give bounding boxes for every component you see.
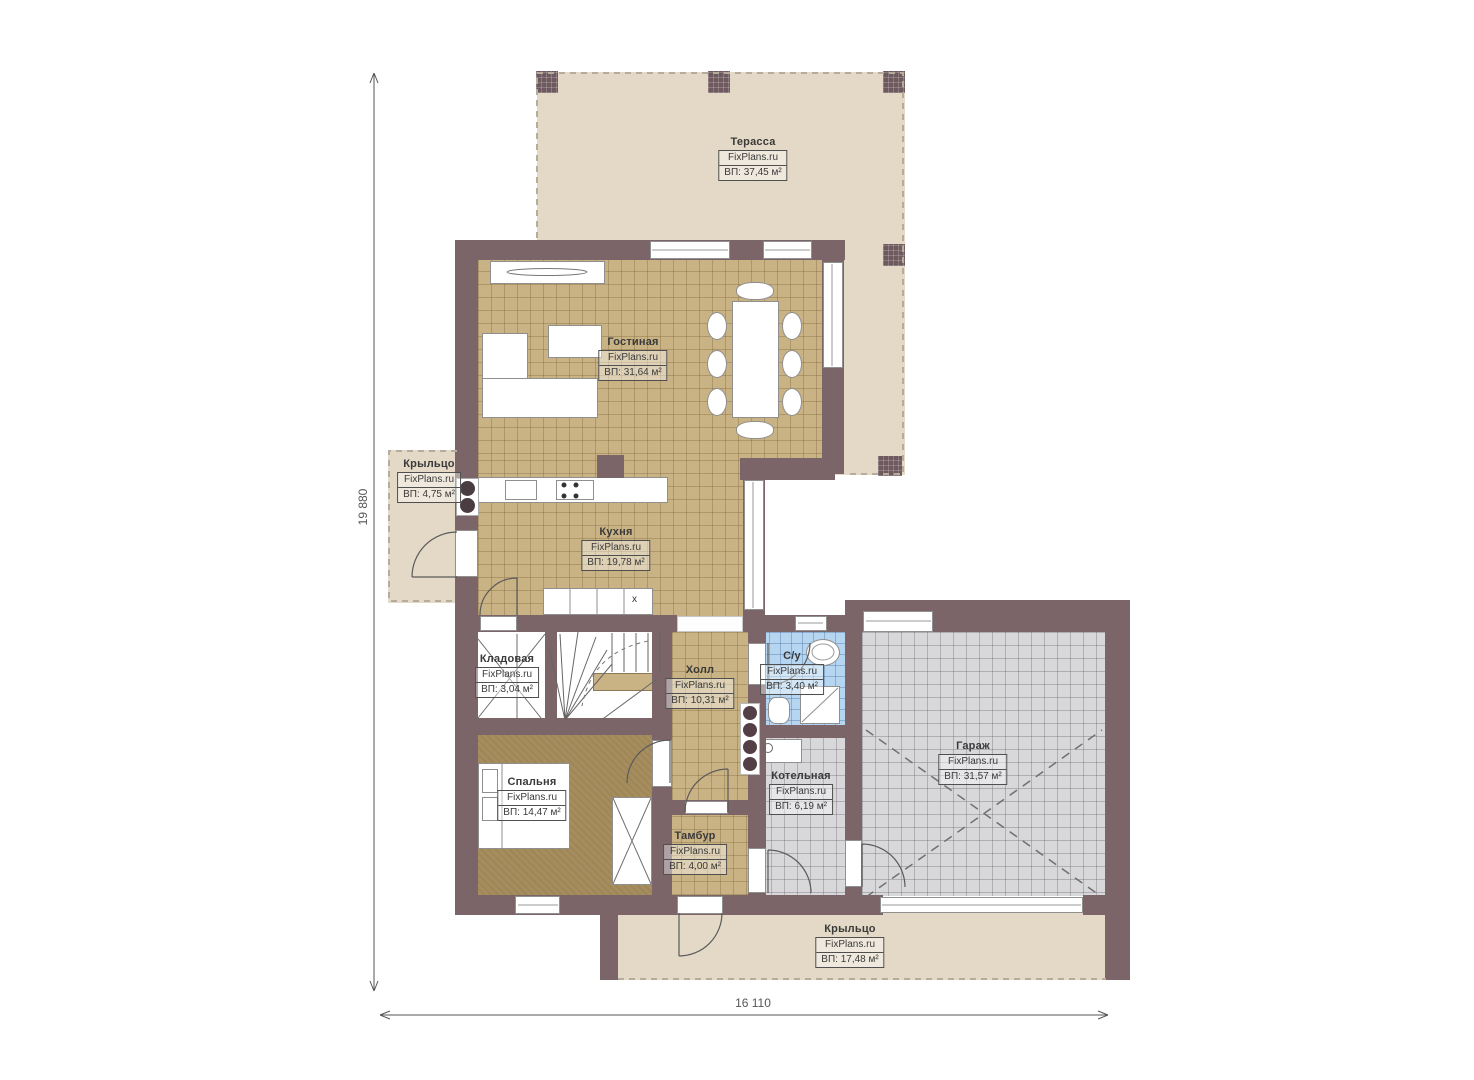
sofa <box>482 378 598 418</box>
brand-watermark: FixPlans.ru <box>761 665 823 680</box>
wall-segment <box>600 895 618 980</box>
bed-pillow <box>482 769 498 793</box>
room-info-box: FixPlans.ru ВП: 31,64 м² <box>598 350 667 381</box>
dimension-width: 16 110 <box>718 996 788 1010</box>
room-info-box: FixPlans.ru ВП: 4,75 м² <box>397 472 461 503</box>
dining-chair <box>782 350 802 378</box>
room-info-box: FixPlans.ru ВП: 37,45 м² <box>718 150 787 181</box>
room-info-box: FixPlans.ru ВП: 17,48 м² <box>815 937 884 968</box>
terrace-pillar <box>878 456 902 476</box>
chimney-column <box>597 455 624 478</box>
room-name: Гостиная <box>598 336 667 348</box>
brand-watermark: FixPlans.ru <box>498 791 565 806</box>
door-opening <box>455 530 478 577</box>
heating-manifold-valve <box>743 706 757 720</box>
room-name: Холл <box>665 664 734 676</box>
room-label-bathroom: С/у FixPlans.ru ВП: 3,40 м² <box>760 650 824 695</box>
passage-threshold <box>677 616 743 632</box>
room-info-box: FixPlans.ru ВП: 6,19 м² <box>769 784 833 815</box>
island-marker: x <box>632 594 637 605</box>
terrace-pillar <box>883 244 905 266</box>
room-info-box: FixPlans.ru ВП: 19,78 м² <box>581 540 650 571</box>
dining-chair <box>736 282 774 300</box>
brand-watermark: FixPlans.ru <box>770 785 832 800</box>
room-label-garage: Гараж FixPlans.ru ВП: 31,57 м² <box>938 740 1007 785</box>
room-label-vestibule: Тамбур FixPlans.ru ВП: 4,00 м² <box>663 830 727 875</box>
room-label-living-room: Гостиная FixPlans.ru ВП: 31,64 м² <box>598 336 667 381</box>
wall-segment <box>748 725 845 738</box>
kitchen-stove <box>556 480 594 500</box>
room-name: С/у <box>760 650 824 662</box>
room-area: ВП: 19,78 м² <box>582 556 649 570</box>
room-info-box: FixPlans.ru ВП: 10,31 м² <box>665 678 734 709</box>
room-label-boiler-room: Котельная FixPlans.ru ВП: 6,19 м² <box>769 770 833 815</box>
room-name: Терасса <box>718 136 787 148</box>
room-area: ВП: 6,19 м² <box>770 800 832 814</box>
room-info-box: FixPlans.ru ВП: 3,40 м² <box>760 664 824 695</box>
wall-unit-burner <box>460 498 475 513</box>
door-opening <box>480 616 517 631</box>
dining-chair <box>782 312 802 340</box>
wall-segment <box>545 632 557 725</box>
window <box>744 480 764 610</box>
brand-watermark: FixPlans.ru <box>666 679 733 694</box>
door-opening <box>685 801 728 814</box>
wall-segment <box>455 718 672 735</box>
dining-table <box>732 301 779 418</box>
hall-floor <box>672 632 748 804</box>
window <box>795 616 827 631</box>
room-area: ВП: 3,40 м² <box>761 680 823 694</box>
brand-watermark: FixPlans.ru <box>398 473 460 488</box>
brand-watermark: FixPlans.ru <box>476 668 538 683</box>
room-name: Кладовая <box>475 653 539 665</box>
stair-landing <box>593 673 660 691</box>
floor-plan: x <box>0 0 1474 1080</box>
room-area: ВП: 3,04 м² <box>476 683 538 697</box>
window <box>863 611 933 632</box>
room-name: Кухня <box>581 526 650 538</box>
tv-stand <box>490 261 605 284</box>
wardrobe <box>612 797 652 885</box>
room-info-box: FixPlans.ru ВП: 31,57 м² <box>938 754 1007 785</box>
wall-segment <box>1105 600 1130 980</box>
heating-manifold-valve <box>743 723 757 737</box>
room-info-box: FixPlans.ru ВП: 3,04 м² <box>475 667 539 698</box>
door-opening <box>652 740 672 787</box>
kitchen-sink <box>505 480 537 500</box>
room-name: Тамбур <box>663 830 727 842</box>
room-label-kitchen: Кухня FixPlans.ru ВП: 19,78 м² <box>581 526 650 571</box>
toilet <box>768 697 790 724</box>
window <box>823 262 843 368</box>
room-label-terrace: Терасса FixPlans.ru ВП: 37,45 м² <box>718 136 787 181</box>
room-label-porch-left: Крыльцо FixPlans.ru ВП: 4,75 м² <box>397 458 461 503</box>
dining-chair <box>736 421 774 439</box>
room-area: ВП: 31,57 м² <box>939 770 1006 784</box>
room-area: ВП: 17,48 м² <box>816 953 883 967</box>
terrace-pillar <box>883 71 905 93</box>
brand-watermark: FixPlans.ru <box>582 541 649 556</box>
room-name: Спальня <box>497 776 566 788</box>
brand-watermark: FixPlans.ru <box>599 351 666 366</box>
brand-watermark: FixPlans.ru <box>816 938 883 953</box>
dining-chair <box>707 350 727 378</box>
dining-chair <box>707 312 727 340</box>
room-area: ВП: 10,31 м² <box>666 694 733 708</box>
brand-watermark: FixPlans.ru <box>939 755 1006 770</box>
room-label-bedroom: Спальня FixPlans.ru ВП: 14,47 м² <box>497 776 566 821</box>
room-name: Котельная <box>769 770 833 782</box>
room-label-storage: Кладовая FixPlans.ru ВП: 3,04 м² <box>475 653 539 698</box>
door-opening <box>748 848 766 893</box>
room-area: ВП: 4,75 м² <box>398 488 460 502</box>
room-area: ВП: 37,45 м² <box>719 166 786 180</box>
room-area: ВП: 14,47 м² <box>498 806 565 820</box>
dimension-height: 19 880 <box>356 477 370 537</box>
brand-watermark: FixPlans.ru <box>719 151 786 166</box>
dining-chair <box>707 388 727 416</box>
room-name: Крыльцо <box>397 458 461 470</box>
wall-segment <box>455 240 478 465</box>
heating-manifold-valve <box>743 757 757 771</box>
room-label-porch-bottom: Крыльцо FixPlans.ru ВП: 17,48 м² <box>815 923 884 968</box>
dining-chair <box>782 388 802 416</box>
window <box>650 241 730 259</box>
coffee-table <box>548 325 602 358</box>
brand-watermark: FixPlans.ru <box>664 845 726 860</box>
window <box>763 241 812 259</box>
door-opening <box>845 840 862 887</box>
room-info-box: FixPlans.ru ВП: 14,47 м² <box>497 790 566 821</box>
room-name: Крыльцо <box>815 923 884 935</box>
garage-door-opening <box>880 897 1083 913</box>
wall-segment <box>768 895 883 915</box>
room-name: Гараж <box>938 740 1007 752</box>
room-area: ВП: 31,64 м² <box>599 366 666 380</box>
heating-manifold-valve <box>743 740 757 754</box>
bed-pillow <box>482 797 498 821</box>
room-info-box: FixPlans.ru ВП: 4,00 м² <box>663 844 727 875</box>
room-label-hall: Холл FixPlans.ru ВП: 10,31 м² <box>665 664 734 709</box>
terrace-pillar <box>536 71 558 93</box>
terrace-pillar <box>708 71 730 93</box>
window <box>515 896 560 914</box>
room-area: ВП: 4,00 м² <box>664 860 726 874</box>
entry-door-opening <box>677 896 723 914</box>
wall-unit-burner <box>460 481 475 496</box>
